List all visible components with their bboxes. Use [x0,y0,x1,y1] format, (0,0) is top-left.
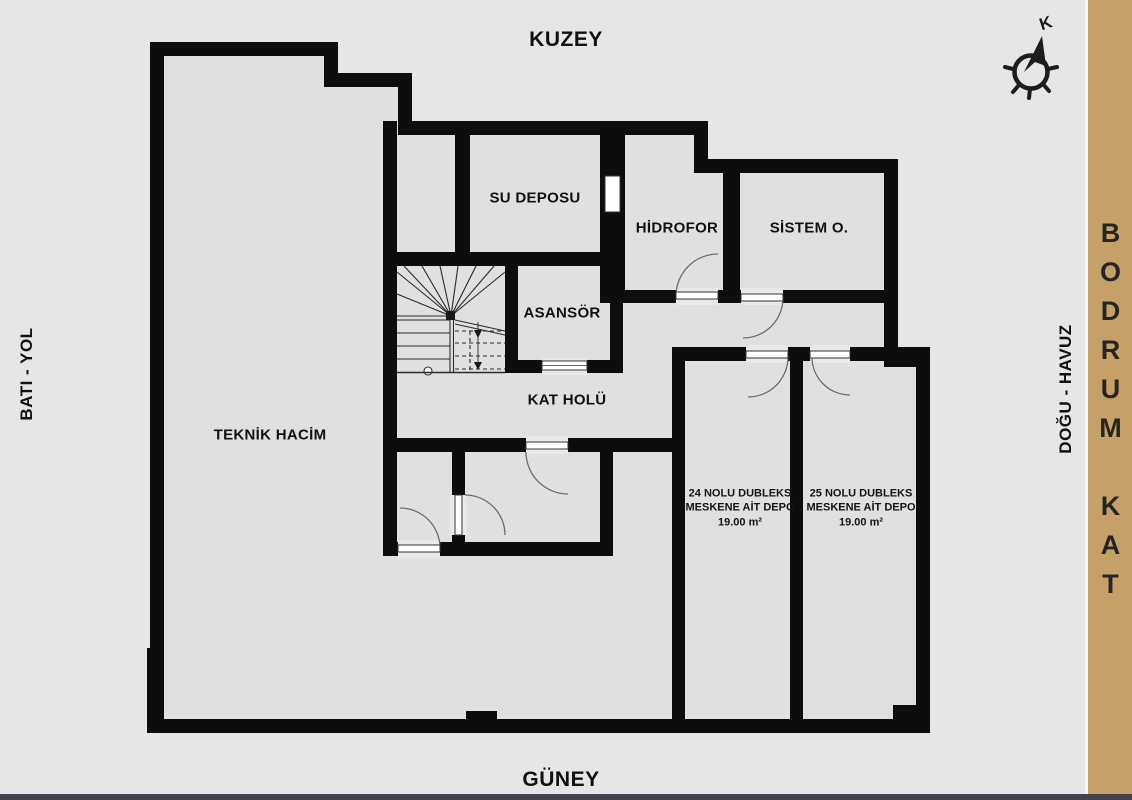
floor-title-banner: BODRUM KAT [1085,0,1132,800]
depo-25-line1: 25 NOLU DUBLEKS [807,487,916,501]
room-label-kat-holu: KAT HOLÜ [528,392,607,409]
su-deposu-hatch [605,176,620,212]
label-east: DOĞU - HAVUZ [1056,324,1076,453]
room-label-teknik-hacim: TEKNİK HACİM [214,427,327,444]
floor-plan-sheet: KUZEY GÜNEY BATI - YOL DOĞU - HAVUZ SU D… [0,0,1132,800]
depo-25-line2: MESKENE AİT DEPO [807,501,916,515]
depo-24-line2: MESKENE AİT DEPO [686,501,795,515]
depo-24-area: 19.00 m² [686,515,795,529]
room-label-su-deposu: SU DEPOSU [489,190,580,207]
room-label-depo-25: 25 NOLU DUBLEKS MESKENE AİT DEPO 19.00 m… [807,487,916,530]
elevator-door [542,361,587,370]
room-label-depo-24: 24 NOLU DUBLEKS MESKENE AİT DEPO 19.00 m… [686,487,795,530]
floor-title: BODRUM KAT [1095,218,1126,800]
compass-north-letter: K [1037,12,1055,34]
label-west: BATI - YOL [17,327,37,420]
label-south: GÜNEY [522,768,599,792]
room-label-sistem-o: SİSTEM O. [770,220,849,237]
building-floor [150,42,930,733]
north-compass-icon: K [1001,8,1065,112]
depo-25-area: 19.00 m² [807,515,916,529]
room-label-asansor: ASANSÖR [523,305,600,322]
label-north: KUZEY [529,28,603,52]
depo-24-line1: 24 NOLU DUBLEKS [686,487,795,501]
room-label-hidrofor: HİDROFOR [636,220,718,237]
sheet-bottom-edge [0,794,1132,800]
